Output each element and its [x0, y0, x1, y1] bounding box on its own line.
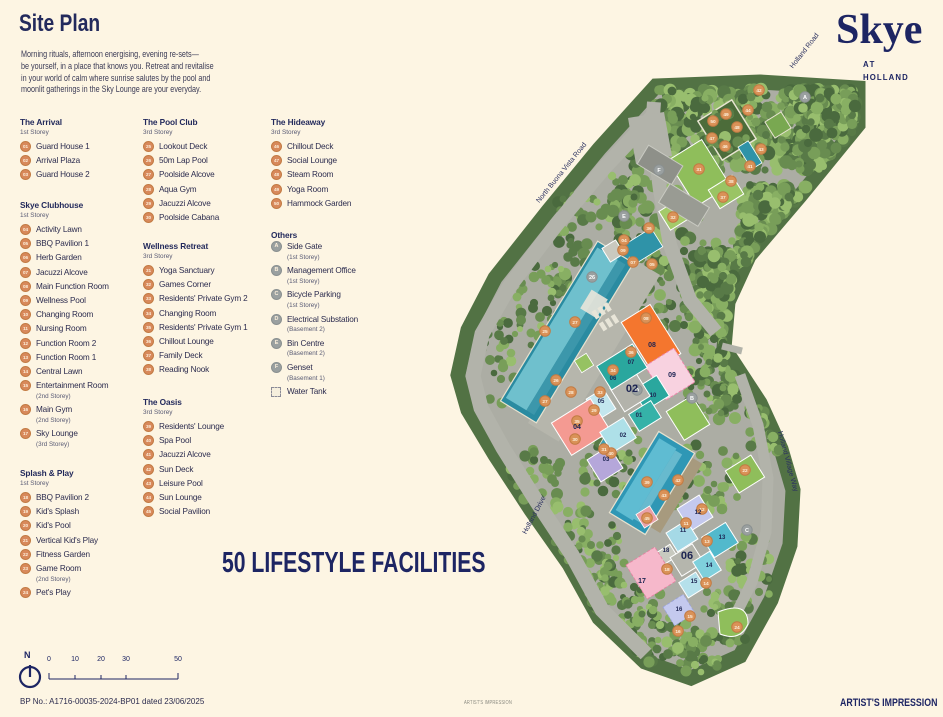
svg-text:10: 10 — [650, 393, 657, 399]
svg-text:37: 37 — [720, 195, 726, 201]
svg-text:50: 50 — [174, 656, 182, 663]
svg-text:11: 11 — [680, 528, 687, 534]
svg-text:B: B — [690, 396, 694, 402]
svg-text:17: 17 — [638, 578, 646, 585]
svg-text:02: 02 — [626, 383, 638, 395]
svg-text:18: 18 — [664, 567, 670, 573]
svg-text:24: 24 — [734, 625, 740, 631]
svg-text:15: 15 — [691, 579, 698, 585]
svg-text:09: 09 — [620, 248, 626, 254]
svg-text:48: 48 — [734, 125, 740, 131]
svg-text:36: 36 — [646, 226, 652, 232]
svg-text:46: 46 — [722, 144, 728, 150]
svg-text:06: 06 — [610, 376, 617, 382]
svg-text:38: 38 — [728, 179, 734, 185]
svg-text:12: 12 — [695, 510, 702, 516]
svg-text:18: 18 — [663, 548, 670, 554]
svg-text:05: 05 — [598, 399, 605, 405]
svg-text:07: 07 — [630, 260, 636, 266]
svg-text:36: 36 — [628, 350, 634, 356]
svg-text:41: 41 — [747, 164, 753, 170]
svg-text:31: 31 — [696, 167, 702, 173]
svg-text:A: A — [803, 95, 807, 101]
svg-text:50: 50 — [710, 119, 716, 125]
svg-text:11: 11 — [683, 521, 688, 527]
svg-text:08: 08 — [648, 342, 656, 349]
svg-text:13: 13 — [704, 539, 710, 545]
svg-text:30: 30 — [122, 656, 130, 663]
svg-text:20: 20 — [97, 656, 105, 663]
svg-text:45: 45 — [644, 516, 650, 522]
svg-text:29: 29 — [591, 408, 597, 414]
svg-text:39: 39 — [644, 480, 650, 486]
svg-text:05: 05 — [649, 262, 655, 268]
svg-text:14: 14 — [703, 581, 709, 587]
svg-text:03: 03 — [603, 457, 610, 463]
svg-text:27: 27 — [572, 320, 578, 326]
svg-text:47: 47 — [709, 136, 715, 142]
svg-text:10: 10 — [71, 656, 79, 663]
svg-text:01: 01 — [636, 413, 643, 419]
svg-text:34: 34 — [610, 368, 616, 374]
svg-text:16: 16 — [675, 629, 681, 635]
svg-text:30: 30 — [572, 437, 578, 443]
svg-text:15: 15 — [687, 614, 693, 620]
svg-text:Holland Road: Holland Road — [789, 32, 821, 70]
svg-text:14: 14 — [706, 563, 713, 569]
svg-text:44: 44 — [745, 108, 751, 114]
svg-text:28: 28 — [568, 390, 574, 396]
svg-text:09: 09 — [668, 372, 676, 379]
svg-text:42: 42 — [756, 88, 762, 94]
svg-text:27: 27 — [542, 399, 548, 405]
svg-text:04: 04 — [573, 424, 581, 431]
svg-text:31: 31 — [601, 447, 607, 453]
svg-text:32: 32 — [670, 215, 676, 221]
svg-text:33: 33 — [597, 390, 603, 396]
svg-text:40: 40 — [608, 451, 614, 457]
svg-text:08: 08 — [643, 316, 649, 322]
svg-text:43: 43 — [661, 493, 667, 499]
svg-text:E: E — [622, 214, 626, 220]
svg-text:26: 26 — [589, 275, 595, 281]
svg-text:42: 42 — [675, 478, 681, 484]
svg-text:22: 22 — [742, 468, 748, 474]
svg-text:25: 25 — [542, 329, 548, 335]
svg-text:C: C — [745, 528, 749, 534]
svg-text:43: 43 — [758, 147, 764, 153]
svg-text:02: 02 — [620, 433, 627, 439]
svg-text:13: 13 — [719, 535, 726, 541]
svg-text:16: 16 — [676, 607, 683, 613]
svg-text:0: 0 — [47, 656, 51, 663]
svg-text:49: 49 — [723, 112, 729, 118]
svg-text:04: 04 — [621, 238, 627, 244]
svg-text:26: 26 — [553, 378, 559, 384]
svg-text:06: 06 — [681, 550, 693, 562]
svg-text:07: 07 — [628, 360, 635, 366]
